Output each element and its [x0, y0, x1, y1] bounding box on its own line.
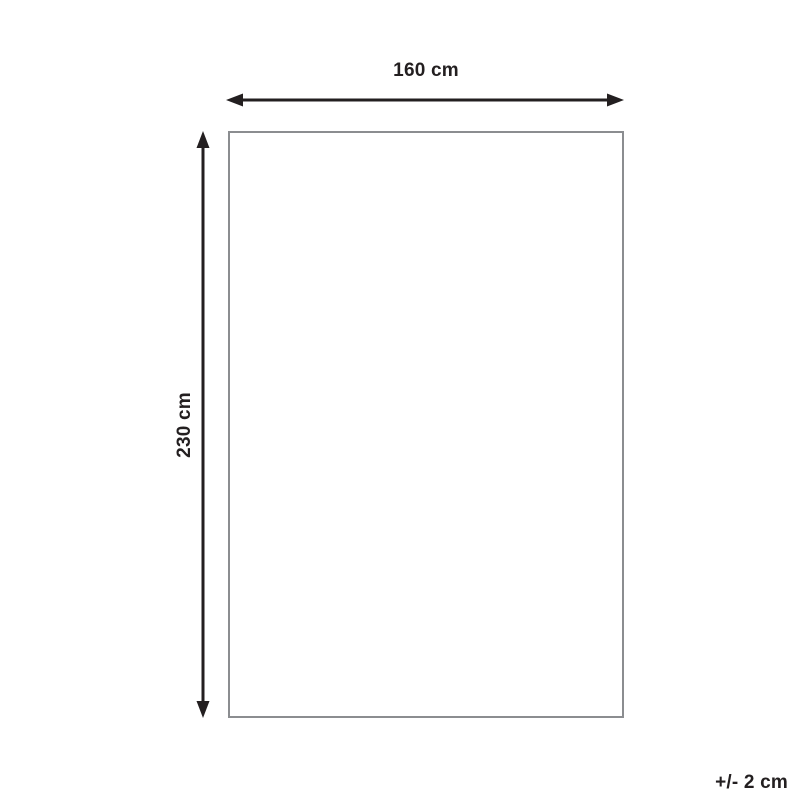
dimension-rectangle — [228, 131, 624, 718]
height-dimension-label-column: 230 cm — [164, 131, 206, 718]
height-dimension-label: 230 cm — [174, 392, 196, 458]
horizontal-double-arrow-icon — [226, 92, 624, 108]
tolerance-label: +/- 2 cm — [715, 772, 788, 794]
width-dimension-label: 160 cm — [228, 60, 624, 82]
product-dimension-diagram: 160 cm 230 cm +/- 2 cm — [0, 0, 800, 800]
